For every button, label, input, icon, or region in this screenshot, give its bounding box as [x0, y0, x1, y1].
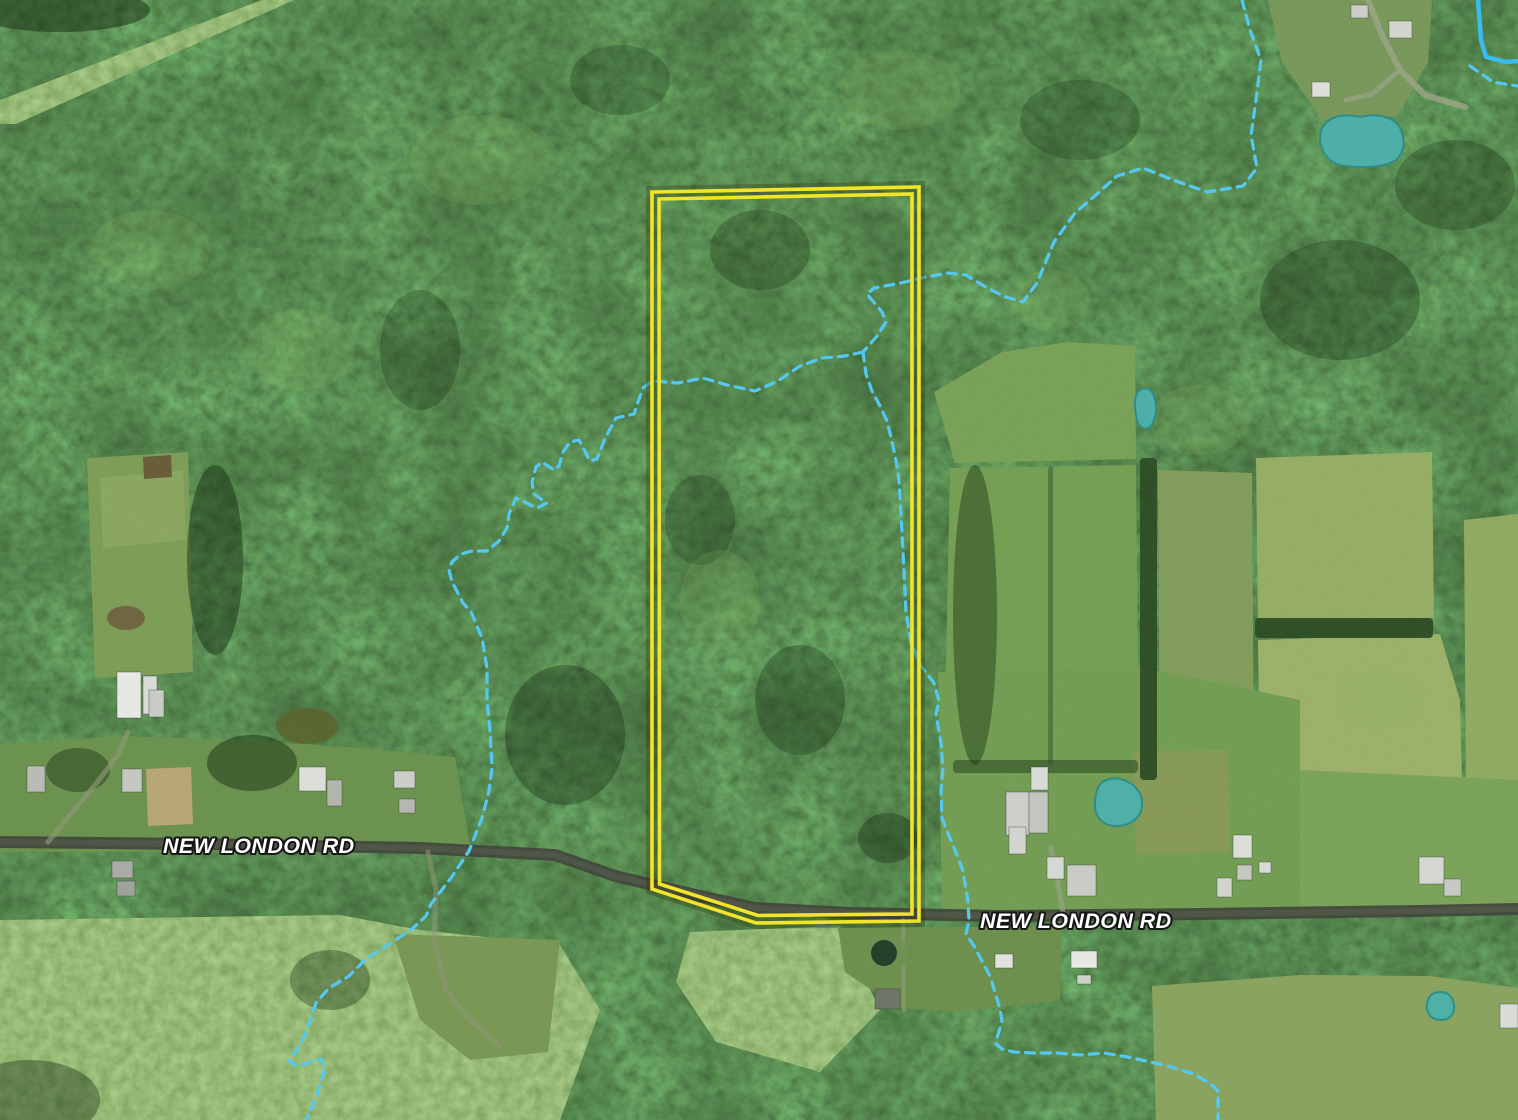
- building: [1312, 82, 1330, 97]
- tree-shadow: [207, 735, 297, 791]
- tree-shadow: [953, 465, 997, 765]
- farm-pond-dark: [871, 940, 897, 966]
- building: [1031, 767, 1048, 790]
- canopy-highlight: [840, 50, 960, 130]
- building: [1389, 21, 1412, 38]
- building: [1009, 827, 1026, 854]
- building: [327, 780, 342, 806]
- tree-shadow: [570, 45, 670, 115]
- building: [875, 989, 900, 1009]
- tree-shadow: [290, 950, 370, 1010]
- pond-topright: [1320, 115, 1403, 167]
- sand-paddock-texture: [146, 767, 193, 826]
- canopy-highlight: [680, 550, 760, 650]
- building: [122, 769, 142, 792]
- building: [1237, 865, 1252, 880]
- building: [1351, 5, 1368, 18]
- tree-shadow: [710, 210, 810, 290]
- building: [394, 771, 415, 788]
- field-right-D-texture: [1256, 452, 1434, 621]
- pond-farm-east: [1095, 778, 1142, 826]
- tree-shadow: [858, 813, 918, 863]
- building: [149, 690, 164, 717]
- building: [1419, 857, 1444, 884]
- fence-line: [1048, 466, 1053, 766]
- road-label-new-london-rd-west: NEW LONDON RD: [163, 834, 355, 858]
- canopy-highlight: [410, 115, 550, 205]
- building: [1077, 975, 1091, 984]
- building: [117, 881, 135, 896]
- building: [1047, 857, 1064, 879]
- tree-shadow: [46, 748, 110, 792]
- lawn-road-far-right-texture: [1300, 770, 1518, 912]
- tree-shadow: [1020, 80, 1140, 160]
- tree-shadow: [1395, 140, 1515, 230]
- building: [27, 766, 45, 792]
- mud-pond-left: [107, 606, 145, 630]
- building: [112, 861, 133, 878]
- building: [1233, 835, 1252, 858]
- building: [1444, 879, 1461, 896]
- field-far-right-texture: [1464, 514, 1518, 800]
- tree-shadow: [187, 465, 243, 655]
- road-label-new-london-rd-east: NEW LONDON RD: [980, 909, 1172, 933]
- building: [1259, 862, 1271, 873]
- pond-small-east: [1135, 388, 1156, 428]
- canopy-highlight: [1010, 270, 1090, 330]
- tree-shadow: [505, 665, 625, 805]
- building: [117, 672, 141, 718]
- field-bottom-right-texture: [1152, 975, 1518, 1120]
- building: [299, 767, 326, 791]
- building: [1029, 792, 1048, 833]
- building: [1071, 951, 1097, 968]
- canopy-highlight: [90, 210, 210, 290]
- tree-shadow: [1260, 240, 1420, 360]
- hedgerow-vertical: [1140, 458, 1157, 780]
- canopy-highlight: [1150, 385, 1250, 455]
- tree-shadow: [755, 645, 845, 755]
- map-viewport[interactable]: NEW LONDON RD NEW LONDON RD: [0, 0, 1518, 1120]
- field-brown-patch-texture: [143, 455, 172, 479]
- building: [399, 799, 415, 813]
- building: [1500, 1004, 1518, 1028]
- pond-bottomright: [1427, 992, 1455, 1020]
- olive-pond-left: [276, 708, 338, 744]
- canopy-highlight: [245, 310, 355, 390]
- building: [1217, 878, 1232, 897]
- building: [1067, 865, 1096, 896]
- aerial-map[interactable]: NEW LONDON RD NEW LONDON RD: [0, 0, 1518, 1120]
- canopy-highlight: [1335, 670, 1425, 730]
- field-left-strip-worn: [100, 470, 186, 548]
- tree-shadow: [380, 290, 460, 410]
- building: [995, 954, 1013, 968]
- hedgerow-horizontal: [1255, 618, 1433, 638]
